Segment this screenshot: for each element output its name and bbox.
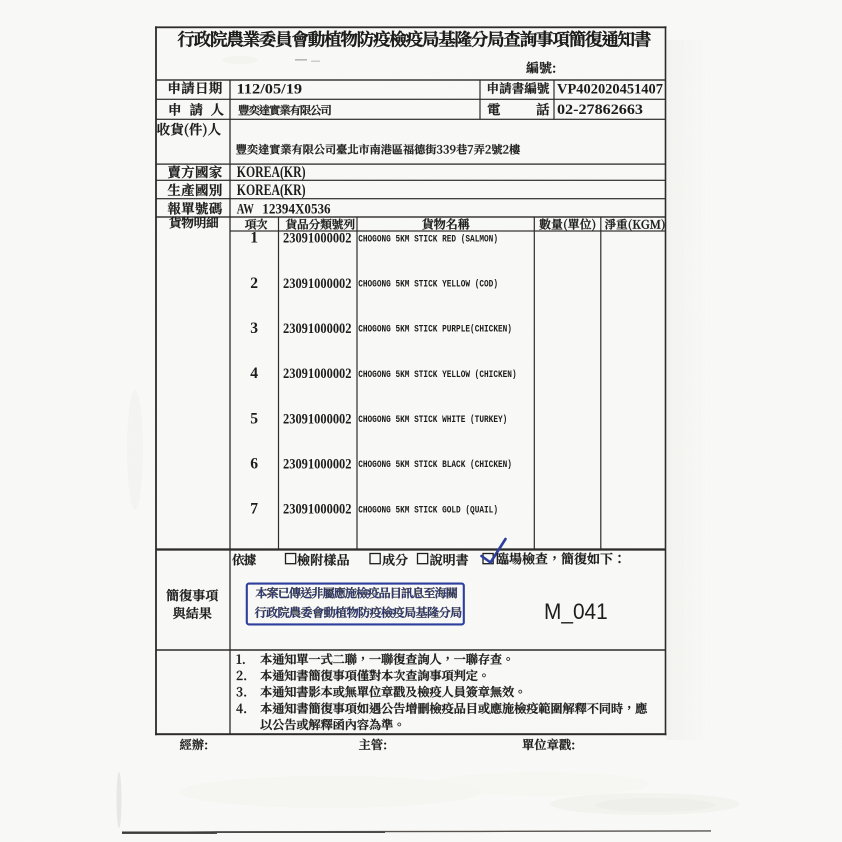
svg-text:23091000002: 23091000002 — [283, 411, 352, 427]
svg-text:CHOGONG 5KM STICK BLACK (CHICK: CHOGONG 5KM STICK BLACK (CHICKEN) — [358, 459, 512, 471]
svg-text:23091000002: 23091000002 — [283, 321, 352, 337]
svg-text:5: 5 — [250, 410, 258, 427]
svg-text:23091000002: 23091000002 — [283, 502, 352, 518]
svg-text:KOREA(KR): KOREA(KR) — [237, 164, 306, 181]
svg-text:23091000002: 23091000002 — [283, 456, 352, 472]
svg-text:112/05/19: 112/05/19 — [237, 82, 303, 98]
svg-text:3: 3 — [250, 320, 258, 337]
svg-text:2: 2 — [250, 275, 258, 292]
svg-text:6: 6 — [250, 455, 258, 472]
svg-text:CHOGONG 5KM STICK WHITE (TURKE: CHOGONG 5KM STICK WHITE (TURKEY) — [358, 414, 507, 426]
svg-text:7: 7 — [250, 501, 258, 518]
svg-text:M_041: M_041 — [544, 599, 608, 624]
svg-text:02-27862663: 02-27862663 — [557, 102, 643, 118]
svg-text:23091000002: 23091000002 — [283, 366, 352, 382]
svg-text:CHOGONG 5KM STICK RED (SALMON): CHOGONG 5KM STICK RED (SALMON) — [358, 233, 498, 245]
svg-text:CHOGONG 5KM STICK GOLD (QUAIL): CHOGONG 5KM STICK GOLD (QUAIL) — [358, 504, 498, 516]
svg-text:1: 1 — [250, 230, 258, 247]
svg-text:CHOGONG 5KM STICK YELLOW (CHIC: CHOGONG 5KM STICK YELLOW (CHICKEN) — [358, 369, 516, 381]
svg-text:KOREA(KR): KOREA(KR) — [237, 182, 306, 199]
svg-text:23091000002: 23091000002 — [283, 276, 352, 292]
svg-text:23091000002: 23091000002 — [283, 231, 352, 247]
svg-text:CHOGONG 5KM STICK PURPLE(CHICK: CHOGONG 5KM STICK PURPLE(CHICKEN) — [358, 324, 512, 336]
svg-text:12394X0536: 12394X0536 — [262, 201, 330, 217]
svg-text:AW: AW — [237, 201, 254, 217]
svg-text:VP402020451407: VP402020451407 — [557, 82, 663, 98]
svg-text:4: 4 — [250, 365, 258, 382]
svg-text:CHOGONG 5KM STICK YELLOW (COD): CHOGONG 5KM STICK YELLOW (COD) — [358, 279, 498, 291]
